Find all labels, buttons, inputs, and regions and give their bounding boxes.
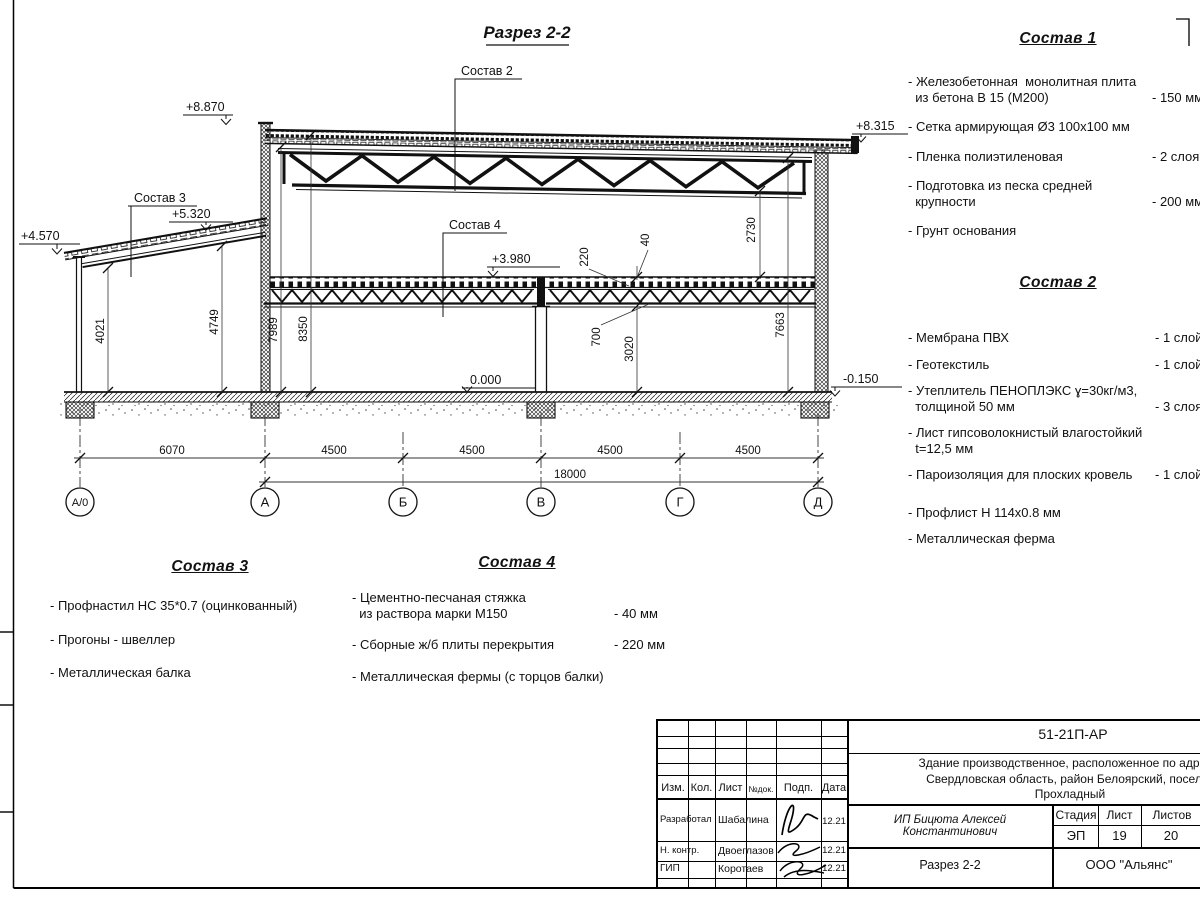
material-item: - Подготовка из песка средней крупности-… (908, 178, 1200, 209)
material-text: - Металлическая фермы (с торцов балки) (352, 669, 682, 685)
sostav2-heading: Состав 2 (908, 272, 1200, 294)
tb-name-ncontrol: Двоеглазов (718, 845, 776, 857)
material-value: - 150 мм (1152, 90, 1200, 106)
sostav3-heading-text: Состав 3 (171, 558, 248, 575)
sostav3-list: Состав 3 - Профнастил НС 35*0.7 (оцинков… (50, 556, 370, 699)
tb-role-developer: Разработал (660, 814, 716, 825)
tb-doc-code: 51-21П-АР (988, 726, 1158, 742)
tb-client: ИП Бицюта Алексей Константинович (850, 814, 1050, 838)
material-item: - Металлическая балка (50, 665, 370, 681)
main-walls (258, 123, 828, 392)
tb-col-list: Лист (715, 779, 746, 798)
material-text: - Профнастил НС 35*0.7 (оцинкованный) (50, 598, 370, 614)
sostav2-heading-text: Состав 2 (1019, 274, 1096, 291)
tb-sheet-label: Лист (1098, 808, 1141, 822)
dim-220: 220 (579, 247, 591, 266)
sostav4-heading: Состав 4 (352, 552, 682, 574)
material-value: - 1 слой (1155, 357, 1200, 373)
elev-annex-high: +5.320 (172, 207, 211, 221)
axis-grid-lines (80, 414, 818, 487)
tb-col-izm: Изм. (658, 779, 688, 798)
material-item: - Профнастил НС 35*0.7 (оцинкованный) (50, 598, 370, 614)
axis-label-a: А (261, 495, 270, 510)
axis-label-a0: А/0 (72, 497, 89, 509)
sostav1-list: Состав 1 - Железобетонная монолитная пли… (908, 28, 1200, 253)
signature-developer (774, 795, 820, 843)
material-item: - Пленка полиэтиленовая- 2 слоя (908, 149, 1200, 165)
dim-4500-1: 4500 (321, 445, 347, 457)
material-item: - Цементно-песчаная стяжка из раствора м… (352, 590, 682, 621)
tb-company: ООО "Альянс" (1054, 857, 1200, 872)
material-text: - Металлическая ферма (908, 531, 1200, 547)
tb-stage-value: ЭП (1054, 828, 1098, 843)
material-item: - Пароизоляция для плоских кровель- 1 сл… (908, 467, 1200, 483)
vertical-dims (108, 135, 788, 392)
material-item: - Геотекстиль- 1 слой (908, 357, 1200, 373)
tb-project-name: Здание производственное, расположенное п… (880, 756, 1200, 803)
material-item: - Сетка армирующая Ø3 100х100 мм (908, 119, 1200, 135)
material-item: - Лист гипсоволокнистый влагостойкий t=1… (908, 425, 1200, 456)
axis-bubbles (66, 488, 832, 516)
tb-date-developer: 12.21 (819, 816, 849, 827)
material-item: - Грунт основания (908, 223, 1200, 239)
material-item: - Мембрана ПВХ- 1 слой (908, 330, 1200, 346)
material-item: - Металлическая ферма (908, 531, 1200, 547)
dim-3020: 3020 (624, 336, 636, 362)
tb-name-developer: Шабалина (718, 814, 776, 826)
sostav1-heading: Состав 1 (908, 28, 1200, 50)
drawing-title: Разрез 2-2 (483, 23, 571, 42)
material-value: - 40 мм (614, 606, 658, 622)
material-text: - Лист гипсоволокнистый влагостойкий t=1… (908, 425, 1200, 456)
material-text: - Грунт основания (908, 223, 1200, 239)
mezzanine-floor (264, 277, 816, 307)
annex-structure (64, 218, 270, 392)
material-value: - 2 слоя (1152, 149, 1199, 165)
material-item: - Металлическая фермы (с торцов балки) (352, 669, 682, 685)
dim-2730: 2730 (746, 217, 758, 243)
material-text: - Профлист Н 114х0.8 мм (908, 505, 1200, 521)
sostav1-heading-text: Состав 1 (1019, 30, 1096, 47)
material-value: - 1 слой (1155, 467, 1200, 483)
dim-700: 700 (591, 327, 603, 346)
elev-top-right: +8.315 (856, 119, 895, 133)
elev-mezzanine: +3.980 (492, 252, 531, 266)
axis-label-g: Г (676, 495, 683, 510)
material-item: - Сборные ж/б плиты перекрытия- 220 мм (352, 637, 682, 653)
title-block: Изм. Кол. Лист №док. Подп. Дата Разработ… (656, 719, 1200, 889)
axis-label-d: Д (814, 495, 823, 510)
dim-7989: 7989 (268, 317, 280, 343)
material-item: - Утеплитель ПЕНОПЛЭКС ɣ=30кг/м3, толщин… (908, 383, 1200, 414)
dim-4500-3: 4500 (597, 445, 623, 457)
floor-slab (58, 392, 838, 418)
dim-7663: 7663 (775, 312, 787, 338)
tb-col-ndok: №док. (746, 779, 776, 799)
material-text: - Металлическая балка (50, 665, 370, 681)
dim-ticks (103, 130, 793, 397)
tb-sheet-title: Разрез 2-2 (850, 858, 1050, 872)
callout-sostav4: Состав 4 (449, 218, 501, 232)
dim-4021: 4021 (95, 318, 107, 344)
drawing-sheet: { "page": {"ink": "#1a1a1a"}, "drawing":… (0, 0, 1200, 900)
material-text: - Прогоны - швеллер (50, 632, 370, 648)
sostav3-heading: Состав 3 (50, 556, 370, 578)
elev-top-left: +8.870 (186, 100, 225, 114)
tb-col-kol: Кол. (688, 779, 715, 798)
material-value: - 220 мм (614, 637, 665, 653)
sostav4-list: Состав 4 - Цементно-песчаная стяжка из р… (352, 552, 682, 700)
material-item: - Железобетонная монолитная плита из бет… (908, 74, 1200, 105)
material-value: - 1 слой (1155, 330, 1200, 346)
dim-chains (74, 458, 824, 482)
material-value: - 3 слоя (1155, 399, 1200, 415)
tb-name-gip: Коротаев (718, 863, 776, 875)
callout-sostav3: Состав 3 (134, 191, 186, 205)
tb-sheets-label: Листов (1141, 808, 1200, 822)
dim-4749: 4749 (209, 309, 221, 335)
tb-role-gip: ГИП (660, 863, 716, 874)
dim-18000: 18000 (554, 469, 586, 481)
dim-4500-2: 4500 (459, 445, 485, 457)
roof-truss (278, 149, 812, 199)
column (532, 307, 550, 393)
axis-label-b: Б (399, 495, 408, 510)
dim-8350: 8350 (298, 316, 310, 342)
material-text: - Сетка армирующая Ø3 100х100 мм (908, 119, 1200, 135)
sostav4-heading-text: Состав 4 (478, 554, 555, 571)
signature-ncontrol-gip (774, 837, 832, 883)
elev-floor: 0.000 (470, 373, 501, 387)
dim-4500-4: 4500 (735, 445, 761, 457)
material-value: - 200 мм (1152, 194, 1200, 210)
tb-role-ncontrol: Н. контр. (660, 845, 716, 856)
tb-sheet-value: 19 (1098, 828, 1141, 843)
axis-label-v: В (537, 495, 546, 510)
sostav2-list: Состав 2 - Мембрана ПВХ- 1 слой - Геотек… (908, 272, 1200, 558)
tb-sheets-value: 20 (1141, 828, 1200, 843)
material-item: - Прогоны - швеллер (50, 632, 370, 648)
elev-ground: -0.150 (843, 372, 878, 386)
dim-6070: 6070 (159, 445, 185, 457)
dim-40: 40 (640, 234, 652, 247)
elev-annex-low: +4.570 (21, 229, 60, 243)
material-item: - Профлист Н 114х0.8 мм (908, 505, 1200, 521)
tb-stage-label: Стадия (1054, 808, 1098, 822)
tb-col-data: Дата (821, 779, 847, 798)
callout-sostav2: Состав 2 (461, 64, 513, 78)
